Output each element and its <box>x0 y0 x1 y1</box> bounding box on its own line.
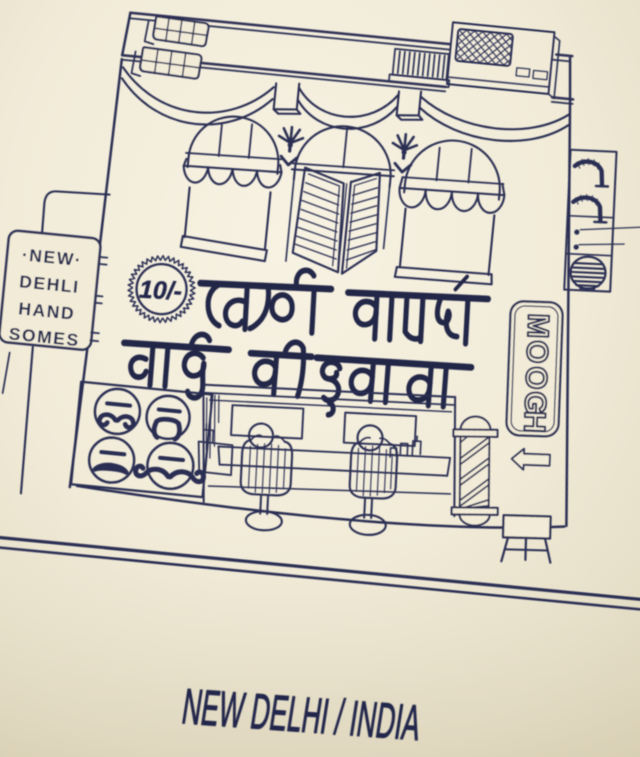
svg-text:M: M <box>521 313 555 339</box>
svg-text:H: H <box>517 410 551 433</box>
svg-text:O: O <box>519 366 553 391</box>
svg-text:O: O <box>520 340 554 365</box>
svg-text:10/-: 10/- <box>138 276 182 306</box>
